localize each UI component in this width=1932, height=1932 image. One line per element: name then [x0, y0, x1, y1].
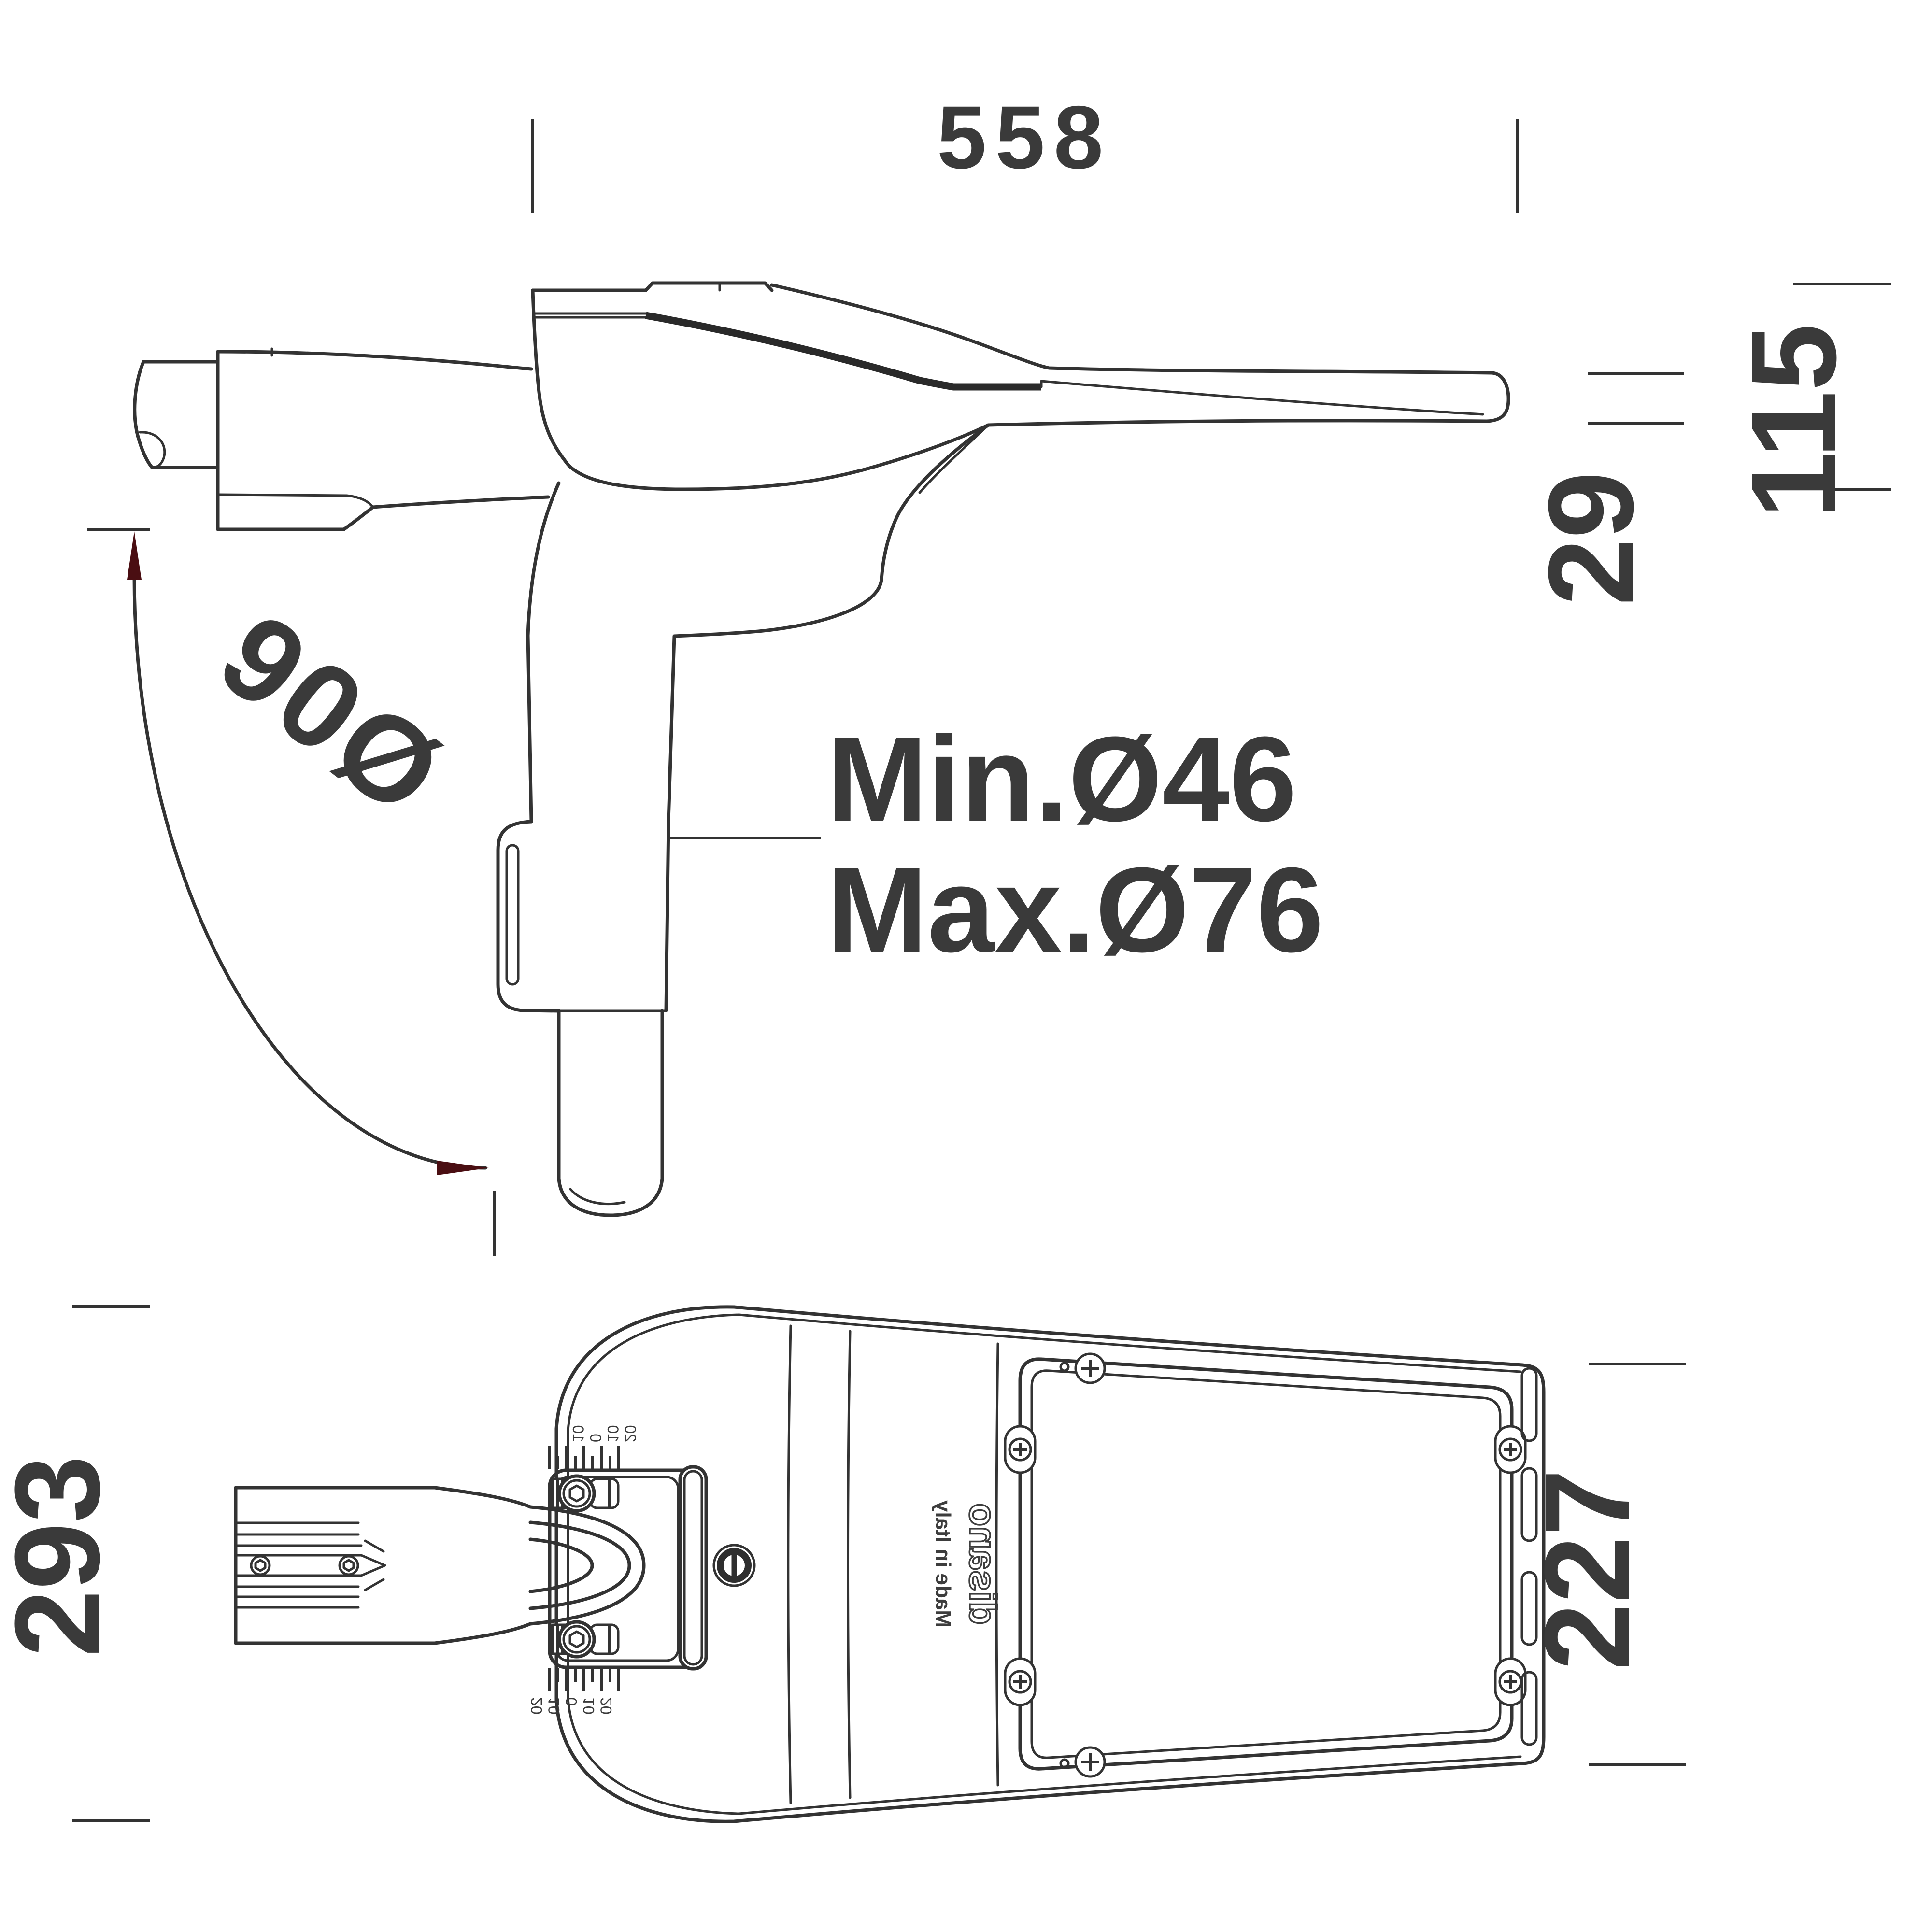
gear-tray [1020, 1359, 1512, 1769]
brand-logo: disano [962, 1503, 1004, 1624]
luminaire-head [533, 283, 1508, 489]
pole-max-diameter-label: Max.Ø76 [827, 842, 1323, 977]
side-view: 558 115 29 90Ø Min.Ø46 Max.Ø76 [87, 88, 1891, 1256]
scale-label: 10 [604, 1425, 622, 1442]
scale-label: 20 [597, 1697, 615, 1715]
scale-label: 20 [528, 1697, 545, 1715]
latch-screw-icon [1005, 1426, 1035, 1473]
front-cap-line [535, 313, 646, 317]
tray-screw-bottom [1061, 1747, 1105, 1776]
dim-29-label: 29 [1523, 471, 1658, 606]
arm-channel [236, 1488, 530, 1643]
bottom-view: 10 0 10 20 20 10 0 10 20 disano Made in … [0, 1307, 1686, 1821]
glass-edge-line [646, 315, 1041, 387]
scale-label: 20 [622, 1425, 639, 1442]
scale-label: 10 [580, 1697, 597, 1715]
scale-label: 0 [587, 1434, 604, 1442]
dim-115-label: 115 [1726, 324, 1861, 518]
channel-bolt-icon [251, 1556, 270, 1575]
bracket-bolt-top [553, 1476, 618, 1511]
bracket-bolt-bottom [553, 1622, 618, 1657]
latch-screw-icon [1005, 1659, 1035, 1705]
tray-latch-screws [1005, 1426, 1525, 1705]
dim-293-label: 293 [0, 1455, 125, 1657]
arc-arrow-up [127, 531, 142, 580]
dim-ticks-29 [1588, 373, 1684, 424]
spigot-nose [530, 1507, 644, 1624]
housing-inner-contour [568, 1315, 1520, 1814]
channel-bolt-icon [340, 1556, 358, 1575]
clamp-slot [507, 845, 518, 984]
scale-label: 10 [569, 1425, 587, 1442]
tilt-scale-top: 10 0 10 20 [549, 1425, 639, 1469]
technical-drawing-canvas: 558 115 29 90Ø Min.Ø46 Max.Ø76 [0, 0, 1932, 1932]
mounting-bracket [218, 349, 548, 529]
center-slotted-screw [714, 1545, 754, 1586]
arc-arrow-right [437, 1161, 489, 1175]
pole-end-cap [559, 1179, 662, 1215]
tilt-scale-bottom: 20 10 0 10 20 [528, 1668, 619, 1715]
origin-label: Made in Italy [931, 1500, 955, 1628]
dim-227-label: 227 [1520, 1469, 1654, 1670]
tray-screw-top [1061, 1354, 1105, 1383]
scale-label: 0 [563, 1697, 580, 1706]
pole-min-diameter-label: Min.Ø46 [827, 711, 1296, 846]
tail-tip [1487, 373, 1508, 421]
scale-label: 10 [545, 1697, 563, 1715]
rotation-angle-label: 90Ø [196, 588, 470, 843]
dim-558-label: 558 [937, 88, 1112, 187]
pole-stub [135, 362, 218, 468]
top-tab [646, 283, 772, 290]
